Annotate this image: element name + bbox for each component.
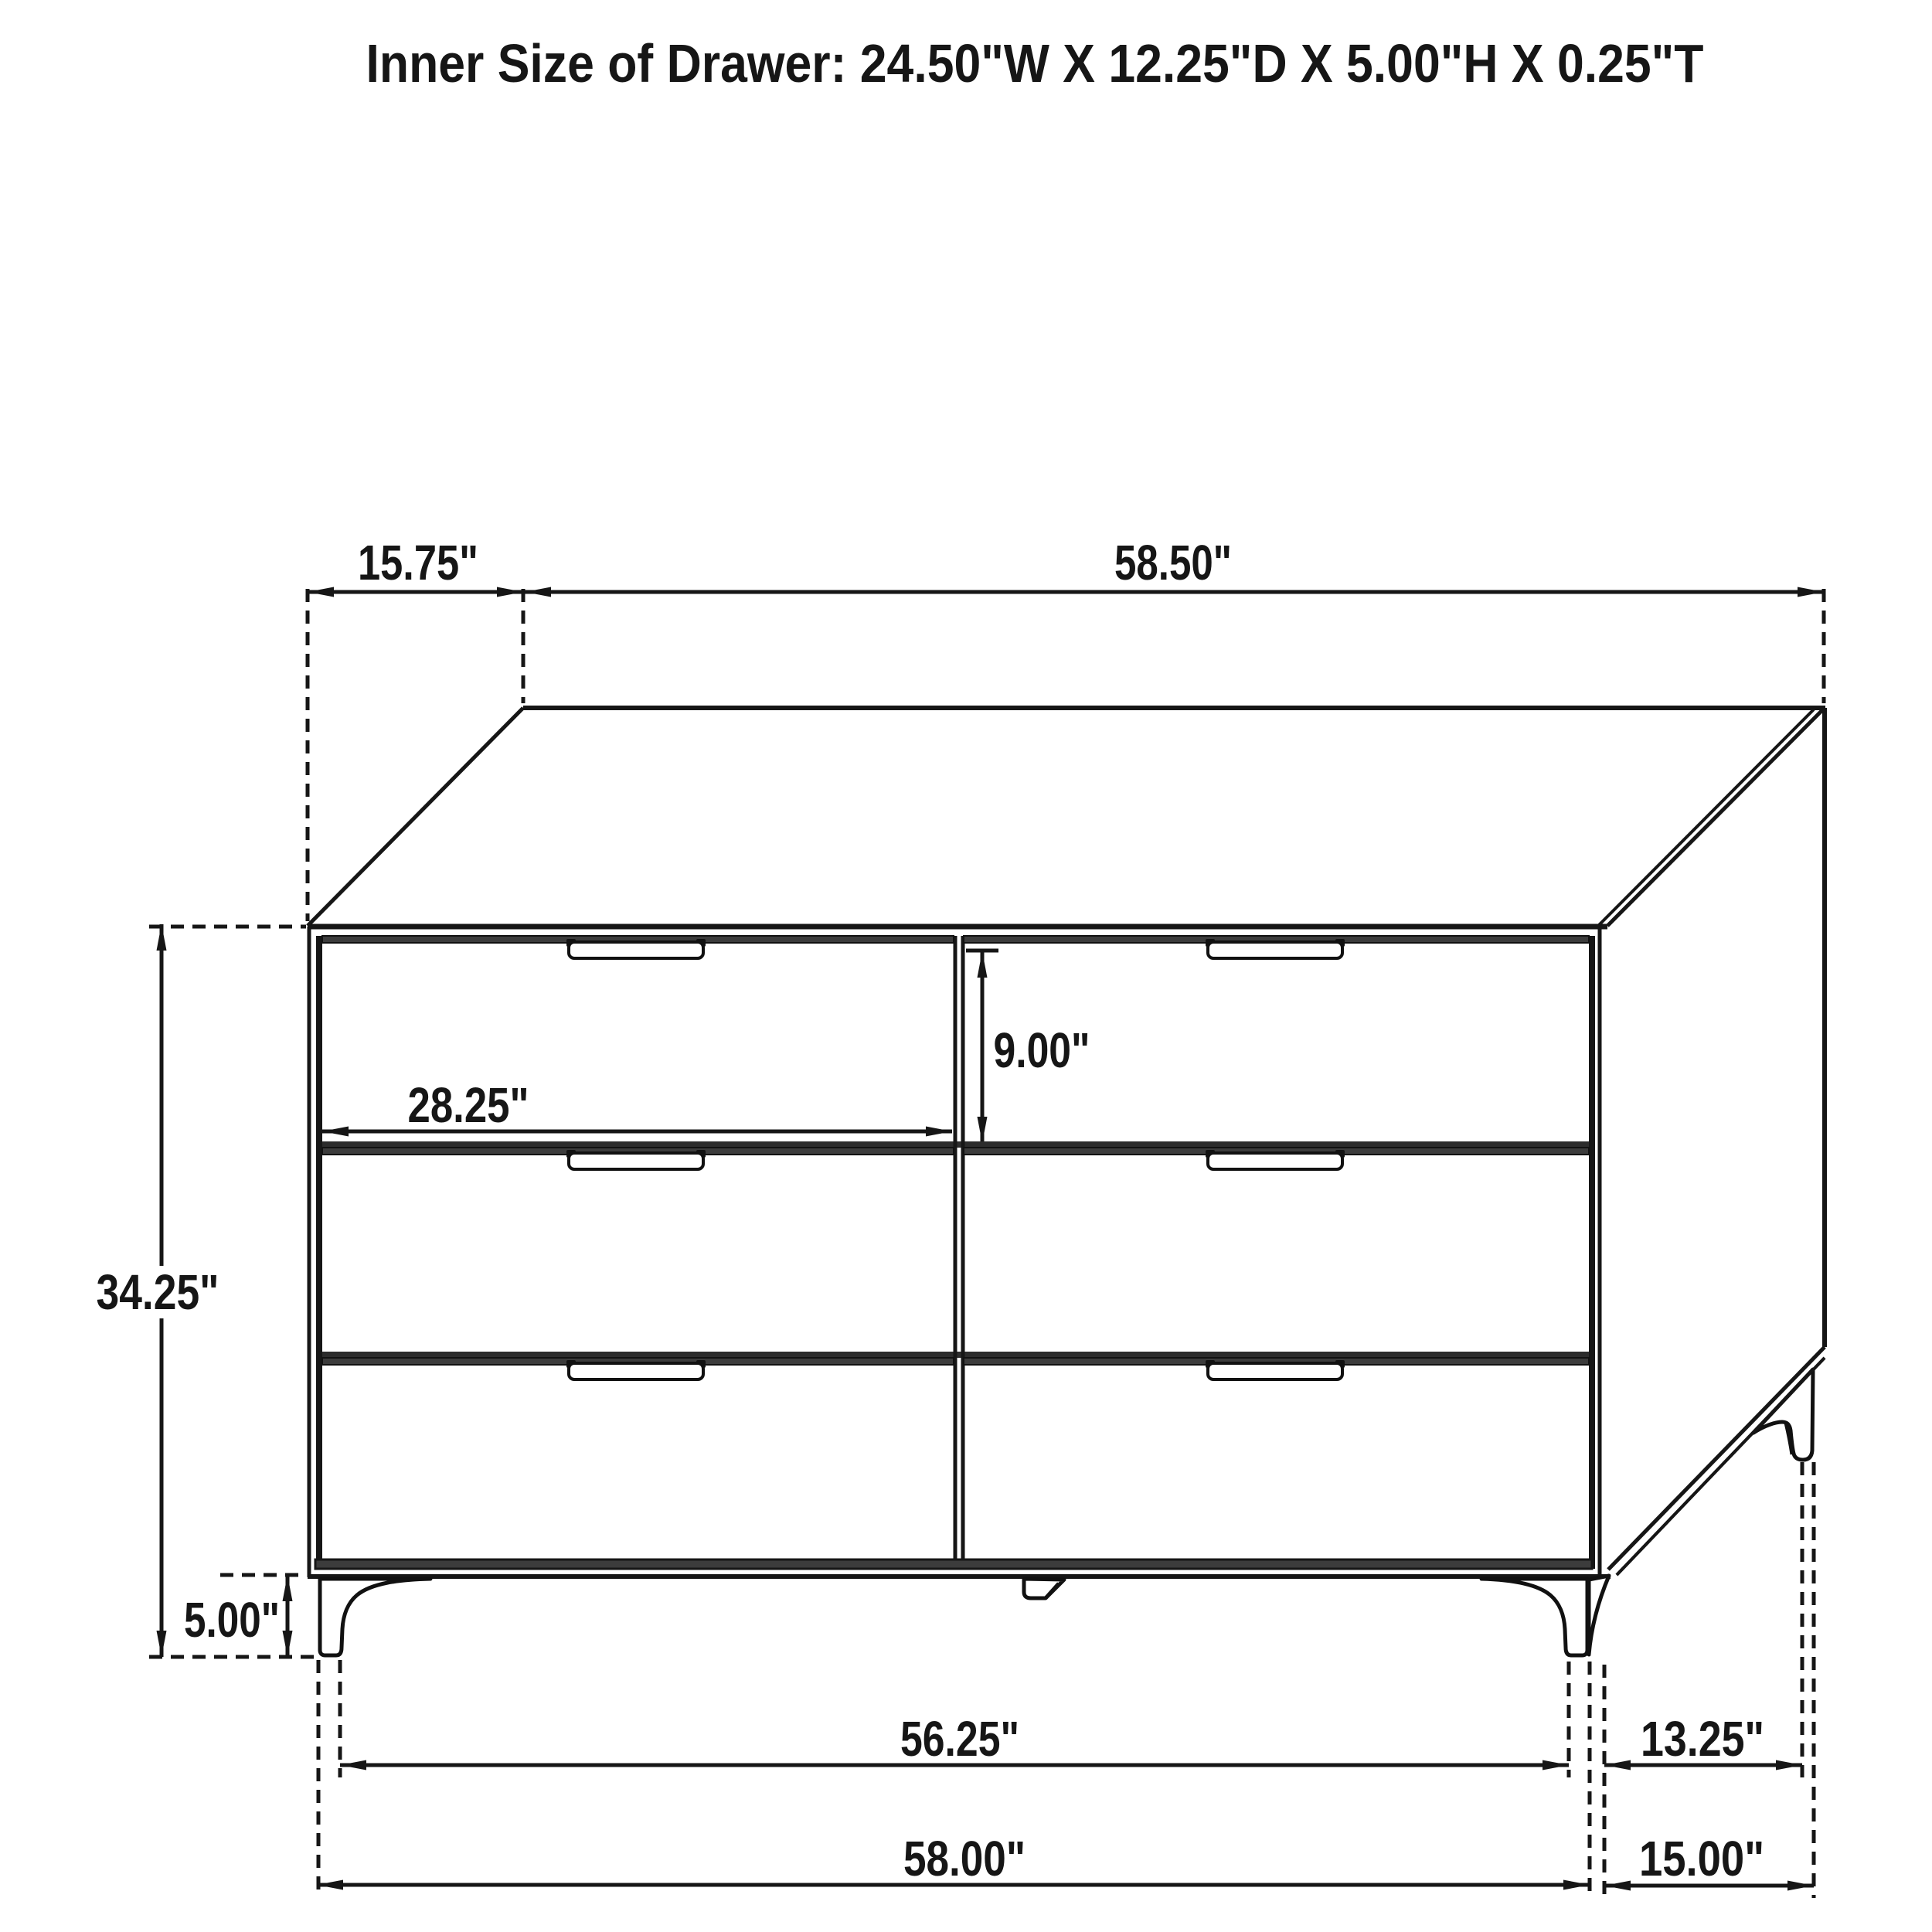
svg-text:34.25": 34.25" (97, 1264, 219, 1320)
svg-text:9.00": 9.00" (994, 1022, 1090, 1078)
svg-text:58.50": 58.50" (1114, 535, 1232, 590)
svg-text:15.00": 15.00" (1639, 1831, 1764, 1886)
svg-text:13.25": 13.25" (1641, 1711, 1764, 1767)
svg-text:56.25": 56.25" (900, 1711, 1019, 1767)
svg-text:28.25": 28.25" (408, 1077, 529, 1133)
svg-text:Inner Size of Drawer: 24.50"W: Inner Size of Drawer: 24.50"W X 12.25"D … (366, 33, 1704, 94)
svg-text:58.00": 58.00" (903, 1831, 1026, 1886)
svg-text:15.75": 15.75" (358, 535, 478, 590)
svg-text:5.00": 5.00" (184, 1592, 280, 1648)
